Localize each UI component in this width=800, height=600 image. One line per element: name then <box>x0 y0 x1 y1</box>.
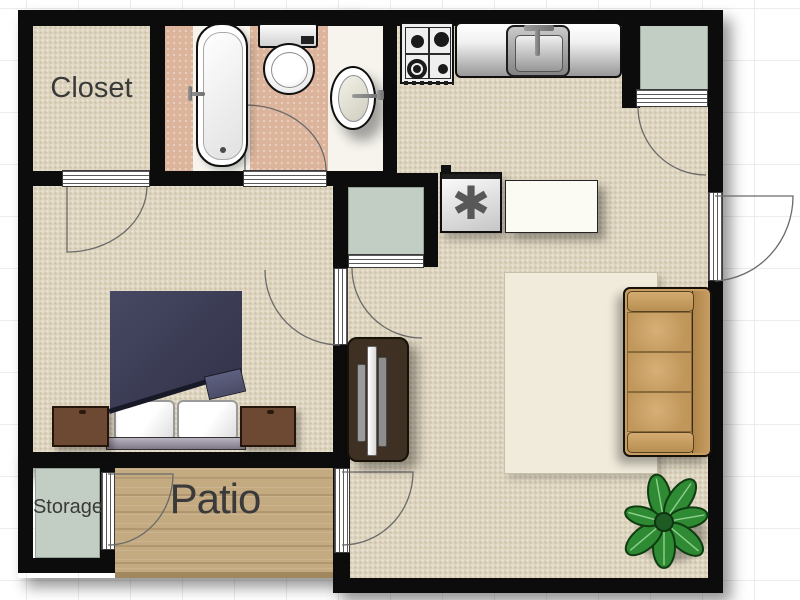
stove-vent <box>404 81 454 85</box>
toilet-seat <box>271 52 308 88</box>
closet-room-label: Closet <box>33 74 150 103</box>
entry-door-swing <box>715 196 793 281</box>
nightstand <box>52 406 109 447</box>
wall-bathroom-kitchen <box>383 10 397 186</box>
stove-burner-icon <box>434 32 449 47</box>
sofa-cushion <box>627 312 692 352</box>
wall-closet-bathroom <box>150 10 165 186</box>
sink-faucet-icon <box>352 94 380 98</box>
nightstand-knob-icon <box>79 410 86 414</box>
wall-hallcloset-top <box>333 173 438 187</box>
closet-door <box>62 170 150 187</box>
tv-screen <box>367 346 377 456</box>
bed-pillow <box>177 400 238 441</box>
stove-grate-line <box>405 53 451 55</box>
utility-asterisk-icon: ✱ <box>452 176 491 230</box>
stove <box>400 22 454 84</box>
entry-closet-door <box>636 89 708 107</box>
sink-faucet-handle-icon <box>377 90 384 100</box>
wall-bottom-living <box>333 578 723 593</box>
pedestal-sink-basin <box>338 75 369 122</box>
entry-closet-floor <box>640 23 708 92</box>
sofa-armrest <box>627 291 694 312</box>
utility-appliance-knob-icon <box>441 165 451 173</box>
bed-frame <box>106 437 246 450</box>
entry-door <box>708 192 723 281</box>
bathtub-basin <box>203 32 243 160</box>
bedroom-door <box>333 268 348 345</box>
stove-burner-icon <box>411 35 424 48</box>
stove-burner-icon <box>438 64 448 74</box>
toilet-bowl <box>263 43 315 95</box>
storage-room-label: Storage <box>28 497 108 517</box>
wall-bedroom-south <box>18 452 350 468</box>
hall-table <box>505 180 598 233</box>
kitchen-faucet-stem-icon <box>535 29 540 56</box>
hall-closet-door <box>348 254 424 268</box>
patio-label: Patio <box>115 478 315 520</box>
nightstand-knob-icon <box>267 410 274 414</box>
toilet-flush-button-icon <box>301 36 314 44</box>
utility-appliance-top <box>442 174 500 179</box>
sofa-cushion <box>627 352 692 392</box>
utility-appliance: ✱ <box>440 172 502 233</box>
wall-left <box>18 10 33 573</box>
sofa-cushion <box>627 392 692 432</box>
wall-hallcloset-right <box>424 173 438 267</box>
stove-burner-icon <box>413 65 421 73</box>
tv-panel <box>378 357 387 447</box>
nightstand <box>240 406 296 447</box>
patio-door <box>334 468 350 553</box>
bathtub-drain-icon <box>220 147 226 153</box>
sofa-armrest <box>627 432 694 453</box>
pedestal-sink <box>330 66 376 130</box>
sofa-backrest <box>692 291 710 453</box>
bathtub-faucet-handle-icon <box>188 86 192 101</box>
hall-closet-floor <box>348 187 424 255</box>
sofa <box>623 287 712 457</box>
bathroom-door <box>243 170 327 187</box>
tv-back-panel <box>357 364 366 442</box>
floor-plan-canvas: ✱ <box>0 0 800 600</box>
